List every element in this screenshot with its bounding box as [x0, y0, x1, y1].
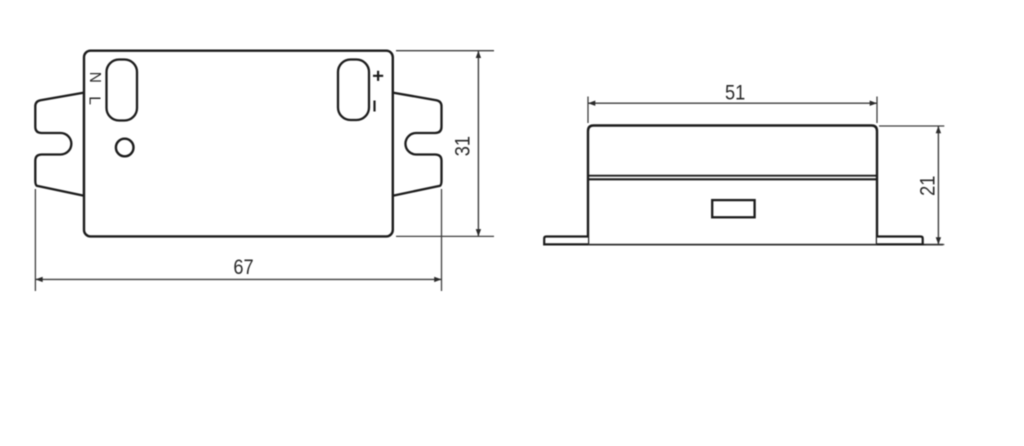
svg-text:31: 31 [451, 136, 475, 156]
svg-text:21: 21 [916, 176, 940, 196]
svg-text:51: 51 [725, 81, 745, 105]
svg-text:L: L [86, 96, 103, 105]
svg-text:N: N [86, 72, 103, 83]
svg-text:67: 67 [233, 255, 253, 279]
